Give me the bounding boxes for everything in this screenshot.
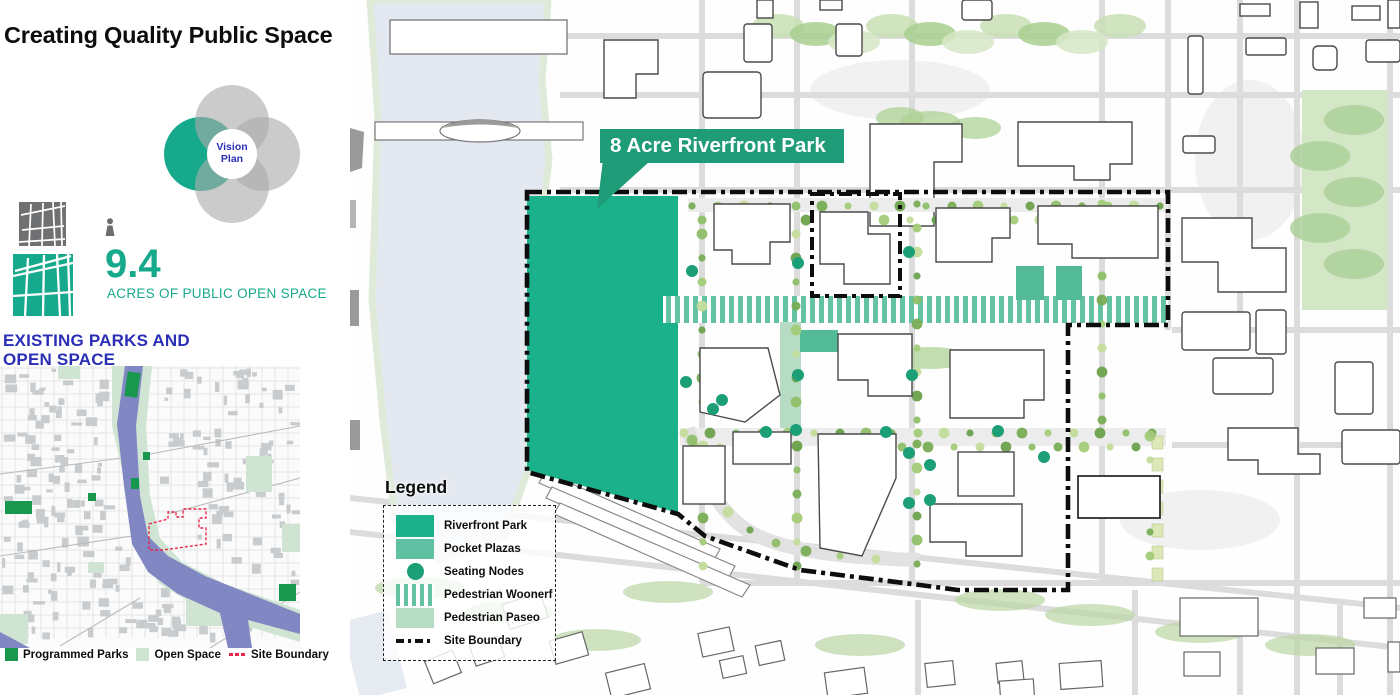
bridge-south (375, 119, 583, 142)
riverfront-park-callout: 8 Acre Riverfront Park (600, 129, 844, 163)
pedestrian-woonerf-legend-label: Pedestrian Woonerf (444, 589, 552, 601)
pedestrian-woonerf-swatch (396, 584, 434, 606)
venn-center-label: Vision Plan (162, 84, 302, 224)
pocket-plazas-legend-label: Pocket Plazas (444, 543, 521, 555)
gray-grid-icon (19, 202, 66, 246)
planning-document-page: Creating Quality Public Space Vision Pla… (0, 0, 1400, 695)
programmed-parks-label: Programmed Parks (23, 649, 128, 661)
vision-plan-venn-diagram: Vision Plan (162, 84, 302, 224)
legend-row-pedestrian-paseo: Pedestrian Paseo (396, 607, 543, 629)
mini-map-legend: Programmed Parks Open Space Site Boundar… (5, 648, 305, 661)
site-boundary-label: Site Boundary (251, 649, 329, 661)
legend-row-site-boundary: Site Boundary (396, 630, 543, 652)
pedestrian-paseo-swatch (396, 608, 434, 628)
existing-parks-heading: EXISTING PARKS AND OPEN SPACE (3, 332, 213, 369)
legend-item-open-space: Open Space (136, 648, 220, 661)
pedestrian-paseo-legend-label: Pedestrian Paseo (444, 612, 540, 624)
site-boundary-swatch (396, 639, 434, 643)
map-legend-title: Legend (385, 477, 447, 498)
seating-nodes-legend-label: Seating Nodes (444, 566, 524, 578)
legend-row-riverfront-park: Riverfront Park (396, 515, 543, 537)
riverfront-park-swatch (396, 515, 434, 537)
legend-item-site-boundary: Site Boundary (229, 649, 329, 661)
legend-row-seating-nodes: Seating Nodes (396, 561, 543, 583)
legend-item-programmed-parks: Programmed Parks (5, 648, 128, 661)
site-boundary-legend-label: Site Boundary (444, 635, 522, 647)
riverfront-park-legend-label: Riverfront Park (444, 520, 527, 532)
river (370, 0, 549, 560)
open-space-label: Open Space (154, 649, 220, 661)
open-space-stat-value: 9.4 (105, 242, 161, 287)
seating-nodes-swatch (407, 563, 424, 580)
riverfront-park-area (527, 196, 678, 513)
page-title: Creating Quality Public Space (4, 22, 334, 49)
map-legend-box: Riverfront Park Pocket Plazas Seating No… (383, 505, 556, 661)
legend-row-pocket-plazas: Pocket Plazas (396, 538, 543, 560)
programmed-parks-swatch (5, 648, 18, 661)
legend-row-pedestrian-woonerf: Pedestrian Woonerf (396, 584, 543, 606)
pocket-plazas-swatch (396, 539, 434, 559)
bridge-north (390, 20, 567, 54)
open-space-swatch (136, 648, 149, 661)
open-space-stat-label: ACRES OF PUBLIC OPEN SPACE (107, 286, 327, 301)
site-boundary-red-dash-icon (229, 653, 246, 656)
green-grid-icon (13, 254, 73, 316)
person-icon (104, 218, 116, 237)
existing-parks-mini-map (0, 366, 300, 648)
